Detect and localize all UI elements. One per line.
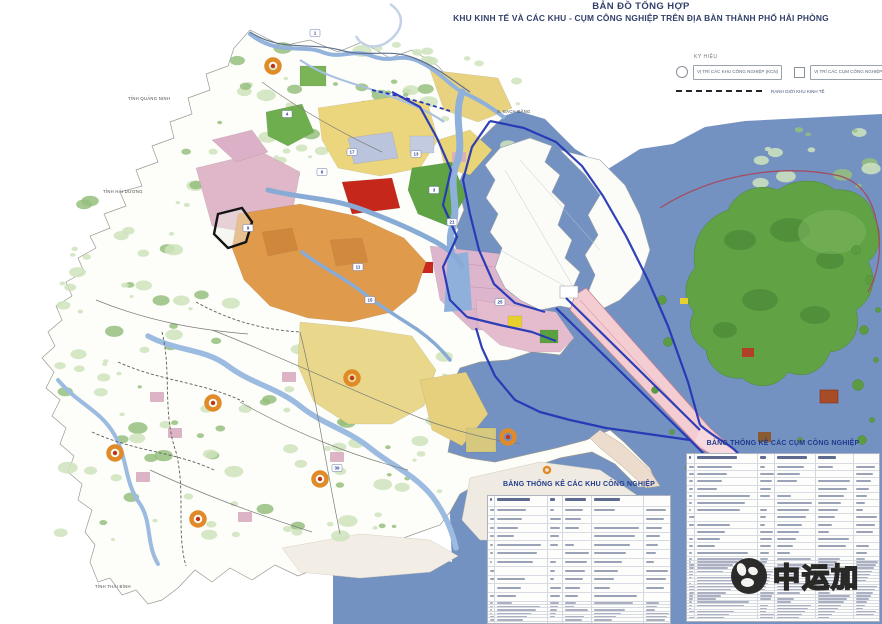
map-title-line1: BẢN ĐỒ TỔNG HỢP	[398, 1, 882, 13]
legend-ccn-label: VỊ TRÍ CÁC CỤM CÔNG NGHIỆP (CCN)	[810, 65, 882, 80]
map-legend: KÝ HIỆU VỊ TRÍ CÁC KHU CÔNG NGHIỆP (KCN)…	[676, 54, 882, 94]
watermark-logo-icon	[731, 558, 767, 594]
table-row	[687, 454, 879, 464]
table-row	[488, 524, 670, 533]
svg-text:15: 15	[367, 298, 373, 303]
kcn-statistics-table	[487, 495, 671, 624]
table-row	[488, 567, 670, 576]
watermark-text: 中运加	[773, 556, 860, 595]
svg-text:25: 25	[497, 300, 503, 305]
svg-text:17: 17	[349, 150, 355, 155]
haiphong-planning-map-page: 1417139116315212539TỈNH QUẢNG NINHTỈNH H…	[0, 0, 882, 624]
table-row	[687, 543, 879, 550]
ccn-statistics-table	[686, 453, 880, 622]
table-row	[488, 516, 670, 525]
table-row	[488, 593, 670, 602]
table-row	[687, 486, 879, 493]
table-row	[687, 514, 879, 521]
svg-text:39: 39	[334, 466, 340, 471]
table-row	[488, 550, 670, 559]
svg-text:TỈNH THÁI BÌNH: TỈNH THÁI BÌNH	[95, 584, 131, 589]
table-row	[687, 529, 879, 536]
svg-text:S. BẠCH ĐẰNG: S. BẠCH ĐẰNG	[497, 109, 531, 114]
table-row	[687, 493, 879, 500]
table-row	[687, 471, 879, 478]
svg-text:TỈNH HẢI DƯƠNG: TỈNH HẢI DƯƠNG	[103, 189, 143, 194]
legend-title: KÝ HIỆU	[694, 54, 882, 60]
table-row	[488, 533, 670, 542]
kcn-table-title: BẢNG THỐNG KÊ CÁC KHU CÔNG NGHIỆP	[487, 481, 671, 488]
svg-text:11: 11	[356, 265, 361, 270]
table-row	[488, 559, 670, 568]
table-row	[687, 500, 879, 507]
watermark-badge: 中运加	[731, 556, 860, 595]
legend-boundary-label: RANH GIỚI KHU KINH TẾ	[771, 89, 825, 94]
boundary-dashed-line-icon	[676, 90, 762, 92]
svg-text:TỈNH QUẢNG NINH: TỈNH QUẢNG NINH	[128, 96, 170, 101]
table-row	[687, 522, 879, 529]
map-title-line2: KHU KINH TẾ VÀ CÁC KHU - CỤM CÔNG NGHIỆP…	[398, 13, 882, 24]
table-row	[687, 507, 879, 514]
table-row	[488, 541, 670, 550]
table-row	[687, 536, 879, 543]
svg-text:21: 21	[449, 220, 455, 225]
svg-text:13: 13	[413, 152, 419, 157]
ccn-table-title: BẢNG THỐNG KÊ CÁC CỤM CÔNG NGHIỆP	[686, 440, 880, 447]
table-row	[488, 507, 670, 516]
ccn-square-icon	[794, 67, 805, 78]
kcn-circle-icon	[676, 66, 688, 78]
legend-kcn-label: VỊ TRÍ CÁC KHU CÔNG NGHIỆP (KCN)	[693, 65, 782, 80]
table-row	[687, 464, 879, 471]
table-row	[488, 576, 670, 585]
table-row	[488, 584, 670, 593]
table-row	[687, 616, 879, 619]
table-row	[488, 496, 670, 507]
map-title-block: BẢN ĐỒ TỔNG HỢP KHU KINH TẾ VÀ CÁC KHU -…	[398, 1, 882, 23]
table-row	[687, 478, 879, 485]
